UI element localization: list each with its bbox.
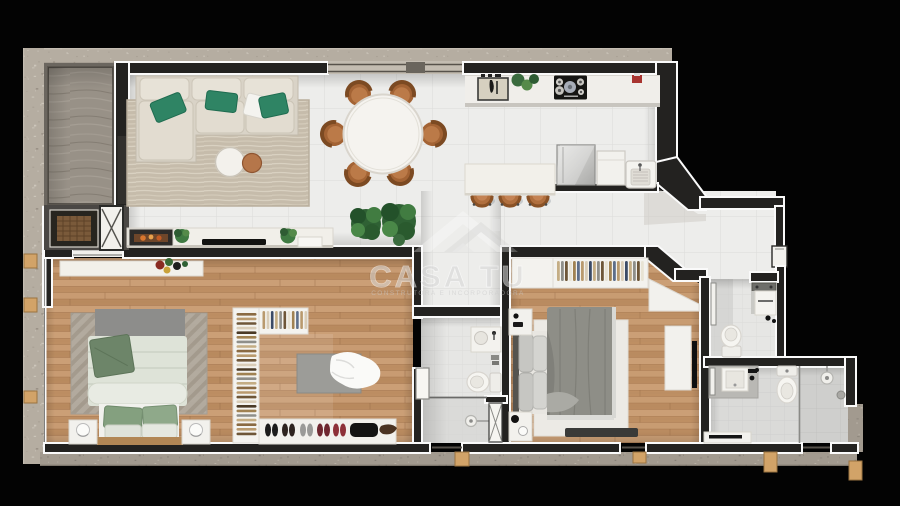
svg-text:CASA TU: CASA TU [369,259,527,294]
svg-text:CONSTRUTORA E INCORPORADORA: CONSTRUTORA E INCORPORADORA [371,290,525,297]
